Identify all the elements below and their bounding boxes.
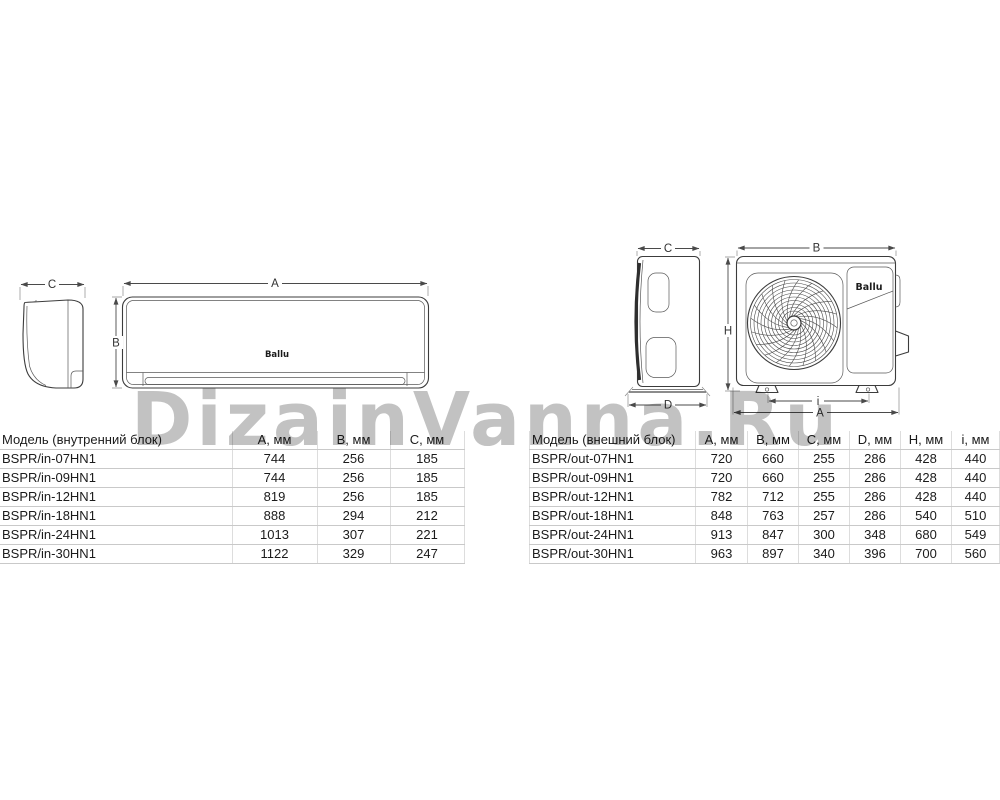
value-cell: 847 xyxy=(748,526,799,545)
value-cell: 680 xyxy=(901,526,952,545)
value-cell: 255 xyxy=(799,450,850,469)
value-cell: 256 xyxy=(317,450,390,469)
model-cell: BSPR/in-24HN1 xyxy=(0,526,232,545)
value-cell: 257 xyxy=(799,507,850,526)
value-cell: 185 xyxy=(390,450,464,469)
column-header: A, мм xyxy=(232,431,317,450)
model-cell: BSPR/out-09HN1 xyxy=(530,469,696,488)
value-cell: 560 xyxy=(952,545,1000,564)
value-cell: 256 xyxy=(317,469,390,488)
table-row: BSPR/in-24HN11013307221 xyxy=(0,526,464,545)
column-header: Модель (внешний блок) xyxy=(530,431,696,450)
outdoor-unit-front-view: Ballu B H xyxy=(721,241,909,420)
column-header: D, мм xyxy=(850,431,901,450)
value-cell: 329 xyxy=(317,545,390,564)
indoor-unit-front-view: Ballu A B xyxy=(109,277,429,389)
value-cell: 428 xyxy=(901,469,952,488)
ballu-logo-indoor: Ballu xyxy=(265,350,289,360)
table-row: BSPR/in-07HN1744256185 xyxy=(0,450,464,469)
dim-label-h: H xyxy=(724,326,732,338)
dimension-d-outdoor: D xyxy=(628,394,707,412)
model-cell: BSPR/in-09HN1 xyxy=(0,469,232,488)
dim-label-d: D xyxy=(664,400,672,412)
column-header: C, мм xyxy=(390,431,464,450)
dimension-b-indoor: B xyxy=(109,297,123,388)
column-header: i, мм xyxy=(952,431,1000,450)
model-cell: BSPR/in-18HN1 xyxy=(0,507,232,526)
value-cell: 712 xyxy=(748,488,799,507)
value-cell: 913 xyxy=(696,526,748,545)
value-cell: 300 xyxy=(799,526,850,545)
column-header: B, мм xyxy=(317,431,390,450)
table-row: BSPR/out-09HN1720660255286428440 xyxy=(530,469,1000,488)
model-cell: BSPR/in-07HN1 xyxy=(0,450,232,469)
value-cell: 763 xyxy=(748,507,799,526)
value-cell: 256 xyxy=(317,488,390,507)
indoor-dimensions-table: Модель (внутренний блок)A, ммB, ммC, ммB… xyxy=(0,431,465,564)
value-cell: 440 xyxy=(952,450,1000,469)
model-cell: BSPR/in-30HN1 xyxy=(0,545,232,564)
table-row: BSPR/in-18HN1888294212 xyxy=(0,507,464,526)
model-cell: BSPR/in-12HN1 xyxy=(0,488,232,507)
table-row: BSPR/out-18HN1848763257286540510 xyxy=(530,507,1000,526)
dim-label-a-out: A xyxy=(816,408,824,420)
value-cell: 819 xyxy=(232,488,317,507)
dim-label-b-out: B xyxy=(813,243,821,255)
table-row: BSPR/out-07HN1720660255286428440 xyxy=(530,450,1000,469)
value-cell: 307 xyxy=(317,526,390,545)
dim-label-c-out: C xyxy=(664,243,672,255)
value-cell: 744 xyxy=(232,450,317,469)
table-row: BSPR/out-30HN1963897340396700560 xyxy=(530,545,1000,564)
dimension-i-outdoor: i xyxy=(768,394,869,409)
model-cell: BSPR/out-24HN1 xyxy=(530,526,696,545)
value-cell: 428 xyxy=(901,450,952,469)
column-header: Модель (внутренний блок) xyxy=(0,431,232,450)
fan-grille xyxy=(748,277,841,370)
value-cell: 1013 xyxy=(232,526,317,545)
dim-label-a: A xyxy=(271,278,279,290)
model-cell: BSPR/out-18HN1 xyxy=(530,507,696,526)
table-row: BSPR/in-09HN1744256185 xyxy=(0,469,464,488)
value-cell: 848 xyxy=(696,507,748,526)
value-cell: 720 xyxy=(696,469,748,488)
dimension-a-indoor: A xyxy=(123,277,428,297)
value-cell: 744 xyxy=(232,469,317,488)
value-cell: 510 xyxy=(952,507,1000,526)
value-cell: 286 xyxy=(850,450,901,469)
column-header: C, мм xyxy=(799,431,850,450)
model-cell: BSPR/out-12HN1 xyxy=(530,488,696,507)
value-cell: 255 xyxy=(799,469,850,488)
dimension-c-indoor: C xyxy=(20,278,85,301)
header-row: Модель (внутренний блок)A, ммB, ммC, мм xyxy=(0,431,464,450)
outdoor-unit-side-view: C D xyxy=(625,242,710,412)
value-cell: 396 xyxy=(850,545,901,564)
dim-label-b: B xyxy=(112,338,120,350)
value-cell: 340 xyxy=(799,545,850,564)
dimension-drawings: C Ballu A B xyxy=(0,230,1000,440)
column-header: H, мм xyxy=(901,431,952,450)
model-cell: BSPR/out-07HN1 xyxy=(530,450,696,469)
value-cell: 720 xyxy=(696,450,748,469)
value-cell: 286 xyxy=(850,488,901,507)
column-header: B, мм xyxy=(748,431,799,450)
dimension-c-outdoor: C xyxy=(637,242,700,257)
value-cell: 700 xyxy=(901,545,952,564)
header-row: Модель (внешний блок)A, ммB, ммC, ммD, м… xyxy=(530,431,1000,450)
dimension-b-outdoor: B xyxy=(737,241,896,256)
value-cell: 1122 xyxy=(232,545,317,564)
table-row: BSPR/in-30HN11122329247 xyxy=(0,545,464,564)
mounting-feet xyxy=(756,386,878,393)
value-cell: 348 xyxy=(850,526,901,545)
dim-label-c: C xyxy=(48,279,56,291)
value-cell: 255 xyxy=(799,488,850,507)
ballu-logo-outdoor: Ballu xyxy=(856,282,883,293)
value-cell: 888 xyxy=(232,507,317,526)
table-row: BSPR/in-12HN1819256185 xyxy=(0,488,464,507)
page: C Ballu A B xyxy=(0,0,1000,800)
indoor-unit-side-view: C xyxy=(20,278,85,389)
value-cell: 963 xyxy=(696,545,748,564)
value-cell: 440 xyxy=(952,469,1000,488)
value-cell: 540 xyxy=(901,507,952,526)
model-cell: BSPR/out-30HN1 xyxy=(530,545,696,564)
value-cell: 660 xyxy=(748,450,799,469)
value-cell: 286 xyxy=(850,507,901,526)
value-cell: 782 xyxy=(696,488,748,507)
dimension-h-outdoor: H xyxy=(721,257,740,391)
value-cell: 185 xyxy=(390,488,464,507)
table-row: BSPR/out-24HN1913847300348680549 xyxy=(530,526,1000,545)
value-cell: 440 xyxy=(952,488,1000,507)
value-cell: 428 xyxy=(901,488,952,507)
value-cell: 247 xyxy=(390,545,464,564)
value-cell: 185 xyxy=(390,469,464,488)
value-cell: 294 xyxy=(317,507,390,526)
outdoor-dimensions-table: Модель (внешний блок)A, ммB, ммC, ммD, м… xyxy=(529,431,1000,564)
value-cell: 660 xyxy=(748,469,799,488)
value-cell: 897 xyxy=(748,545,799,564)
value-cell: 549 xyxy=(952,526,1000,545)
table-row: BSPR/out-12HN1782712255286428440 xyxy=(530,488,1000,507)
column-header: A, мм xyxy=(696,431,748,450)
value-cell: 286 xyxy=(850,469,901,488)
value-cell: 221 xyxy=(390,526,464,545)
value-cell: 212 xyxy=(390,507,464,526)
